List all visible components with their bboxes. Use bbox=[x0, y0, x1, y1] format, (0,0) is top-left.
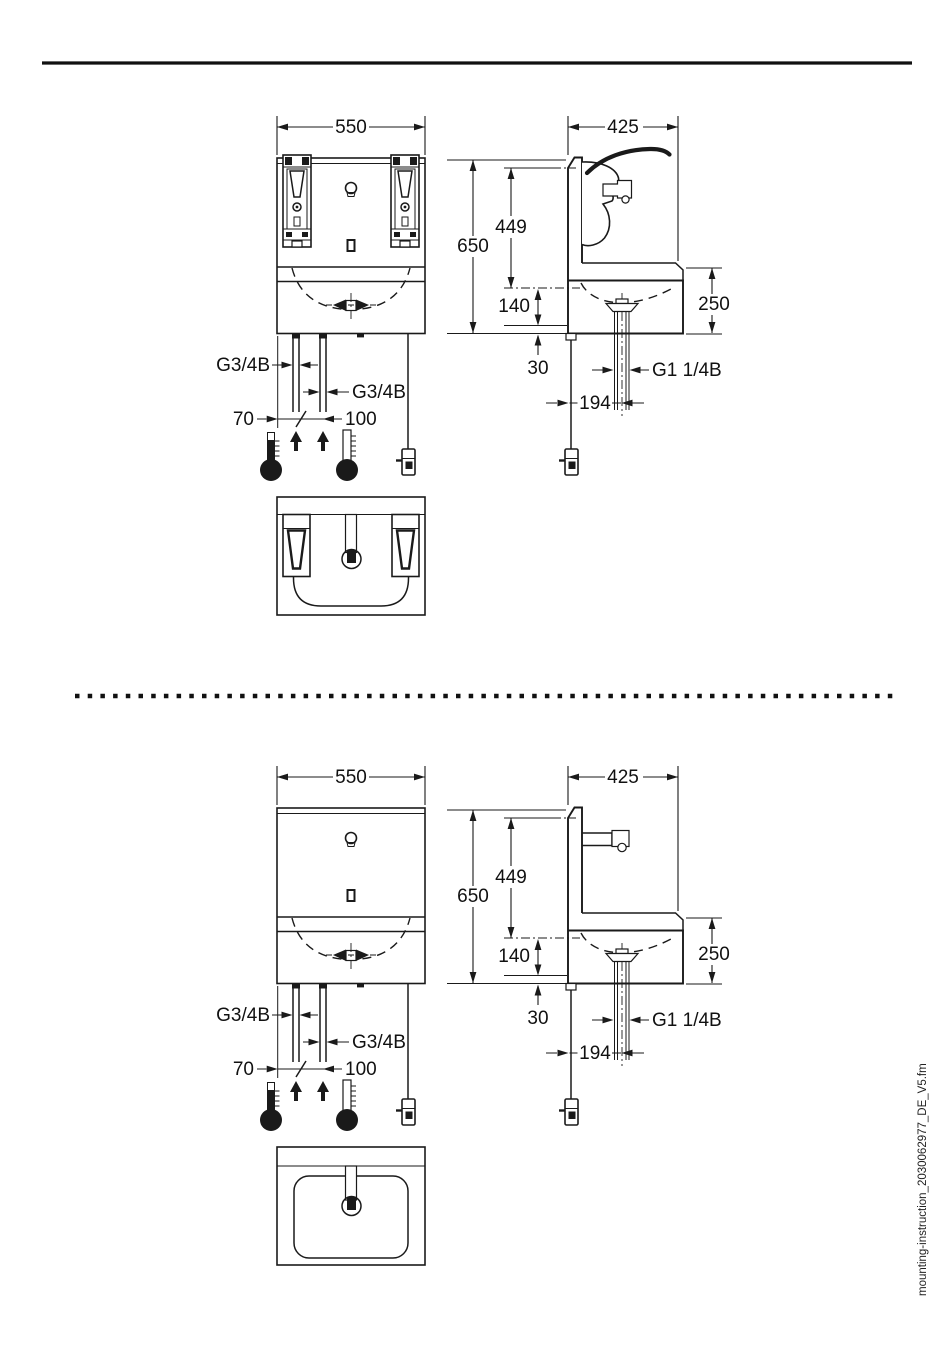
cold-water-thermometer-icon bbox=[336, 1080, 358, 1131]
plan-view-bottom bbox=[277, 1147, 425, 1265]
label-supply-thread-right-top: G3/4B bbox=[352, 382, 406, 403]
front-view-top: 550 G3/4B G3/4B bbox=[216, 116, 425, 481]
spout-tap bbox=[582, 831, 629, 852]
figure-bottom: 550 G3/4B G3/4B 70 bbox=[216, 766, 730, 1265]
dispenser-plan-right bbox=[392, 515, 419, 577]
flow-arrow-icon bbox=[290, 1081, 302, 1101]
dim-side-depth-top: 425 bbox=[607, 117, 639, 138]
dim-total-height-top: 650 bbox=[457, 236, 489, 257]
power-plug-icon bbox=[396, 449, 415, 475]
dim-apron-height-top: 250 bbox=[698, 294, 730, 315]
flow-arrow-icon bbox=[317, 1081, 329, 1101]
hot-water-thermometer-icon bbox=[260, 1082, 282, 1131]
dispenser-plan-left bbox=[283, 515, 310, 577]
dim-spout-height-bottom: 449 bbox=[495, 867, 527, 888]
front-slot bbox=[348, 890, 355, 901]
dim-pipe-spacing-top: 100 bbox=[345, 409, 377, 430]
dim-front-width-bottom: 550 bbox=[335, 767, 367, 788]
cold-water-thermometer-icon bbox=[336, 430, 358, 481]
dim-drain-offset-top: 194 bbox=[579, 393, 611, 414]
dim-total-height-bottom: 650 bbox=[457, 886, 489, 907]
label-supply-thread-left-bottom: G3/4B bbox=[216, 1005, 270, 1026]
side-view-bottom: 425 650 449 140 30 250 bbox=[447, 766, 730, 1125]
dim-bottom-offset-top: 30 bbox=[527, 358, 548, 379]
sidebar-filename: mounting-instruction_2030062977_DE_V5.fm bbox=[917, 1063, 929, 1296]
flow-arrow-icon bbox=[317, 431, 329, 451]
dim-basin-depth-bottom: 140 bbox=[498, 946, 530, 967]
dim-pipe-spacing-bottom: 100 bbox=[345, 1059, 377, 1080]
power-plug-icon bbox=[396, 1099, 415, 1125]
dim-edge-offset-bottom: 70 bbox=[233, 1059, 254, 1080]
figure-top: 550 G3/4B G3/4B bbox=[216, 116, 730, 615]
dim-side-depth-bottom: 425 bbox=[607, 767, 639, 788]
power-plug-icon bbox=[559, 449, 578, 475]
document-page: 550 G3/4B G3/4B bbox=[0, 0, 950, 1370]
dim-front-width-top: 550 bbox=[335, 117, 367, 138]
label-supply-thread-right-bottom: G3/4B bbox=[352, 1032, 406, 1053]
dim-spout-height-top: 449 bbox=[495, 217, 527, 238]
label-drain-thread-bottom: G1 1/4B bbox=[652, 1010, 722, 1031]
soap-dispenser-right bbox=[391, 155, 419, 247]
supply-pipes bbox=[293, 989, 326, 1063]
soap-dispenser-left bbox=[283, 155, 311, 247]
dim-edge-offset-top: 70 bbox=[233, 409, 254, 430]
technical-drawing: 550 G3/4B G3/4B bbox=[0, 0, 950, 1370]
front-slot bbox=[348, 240, 355, 251]
side-view-top: 425 650 449 140 30 250 bbox=[447, 116, 730, 475]
dim-basin-depth-top: 140 bbox=[498, 296, 530, 317]
plan-view-top bbox=[277, 497, 425, 615]
power-plug-icon bbox=[559, 1099, 578, 1125]
dim-apron-height-bottom: 250 bbox=[698, 944, 730, 965]
label-drain-thread-top: G1 1/4B bbox=[652, 360, 722, 381]
front-view-bottom: 550 G3/4B G3/4B 70 bbox=[216, 766, 425, 1131]
dim-drain-offset-bottom: 194 bbox=[579, 1043, 611, 1064]
drain-pipe bbox=[615, 962, 630, 1060]
label-supply-thread-left-top: G3/4B bbox=[216, 355, 270, 376]
mixer-tap bbox=[582, 149, 670, 246]
supply-pipes bbox=[293, 339, 326, 413]
flow-arrow-icon bbox=[290, 431, 302, 451]
dim-bottom-offset-bottom: 30 bbox=[527, 1008, 548, 1029]
hot-water-thermometer-icon bbox=[260, 432, 282, 481]
drain-pipe bbox=[615, 312, 630, 410]
